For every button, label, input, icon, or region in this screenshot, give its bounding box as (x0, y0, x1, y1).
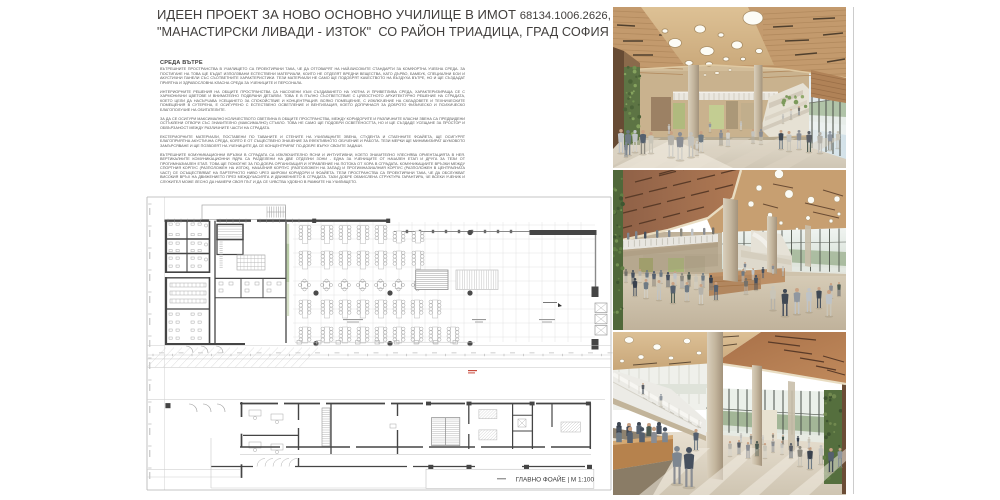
svg-text:ГЛАВНО ФОАЙЕ | М 1:100: ГЛАВНО ФОАЙЕ | М 1:100 (516, 475, 595, 484)
